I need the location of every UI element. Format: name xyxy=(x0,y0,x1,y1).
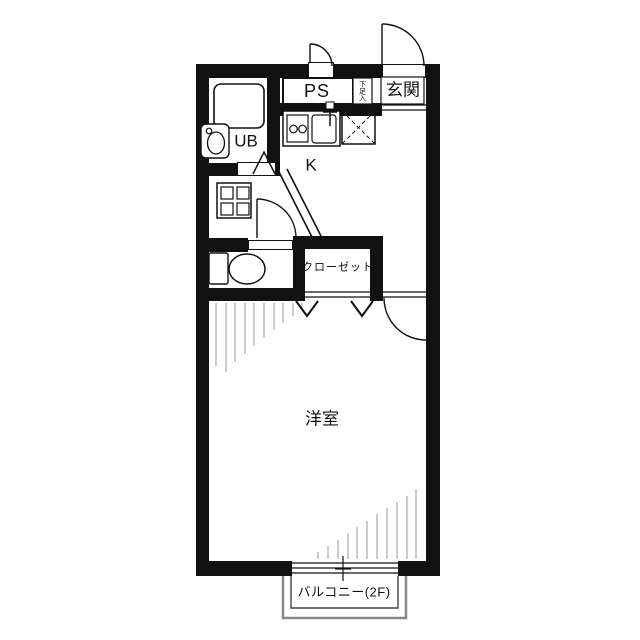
washbasin-icon xyxy=(201,124,229,158)
closet-folding-door-icon xyxy=(296,292,373,316)
toilet-doorway xyxy=(249,241,293,250)
sliding-window-icon xyxy=(292,556,398,581)
toilet-door-swing-icon xyxy=(257,199,296,238)
entrance-door-swing-icon xyxy=(382,24,424,66)
toilet-icon xyxy=(209,253,265,284)
wall-ub-right xyxy=(267,64,280,176)
label-unit-bath: UB xyxy=(234,133,258,150)
room-door-threshold xyxy=(383,292,426,297)
ps-doorway xyxy=(309,63,334,78)
wall-closet-top xyxy=(293,236,383,249)
entrance-doorway xyxy=(383,65,426,78)
label-shoe-storage: 下足入 xyxy=(359,81,366,102)
bathtub-icon xyxy=(214,84,264,128)
label-pipe-space: PS xyxy=(304,82,330,100)
floor-plan-canvas: PS 下足入 玄関 UB K クローゼット 洋室 バルコニー(2F) xyxy=(0,0,640,640)
label-entrance: 玄関 xyxy=(386,82,420,99)
wall-toilet-top xyxy=(196,238,248,252)
washer-pan-icon xyxy=(217,183,251,218)
sink-icon xyxy=(312,115,336,143)
sloped-ceiling-hatch-top-left xyxy=(216,303,302,372)
room-door-swing-icon xyxy=(384,298,426,340)
diagonal-wall xyxy=(279,169,321,239)
label-kitchen: K xyxy=(305,157,316,174)
sloped-ceiling-hatch-bottom-right xyxy=(318,489,416,559)
wall-room-top xyxy=(196,288,303,301)
wall-right xyxy=(426,64,440,576)
label-balcony: バルコニー(2F) xyxy=(297,586,390,599)
label-western-room: 洋室 xyxy=(305,411,339,428)
label-closet: クローゼット xyxy=(302,263,374,274)
entrance-step-lines xyxy=(381,105,426,110)
